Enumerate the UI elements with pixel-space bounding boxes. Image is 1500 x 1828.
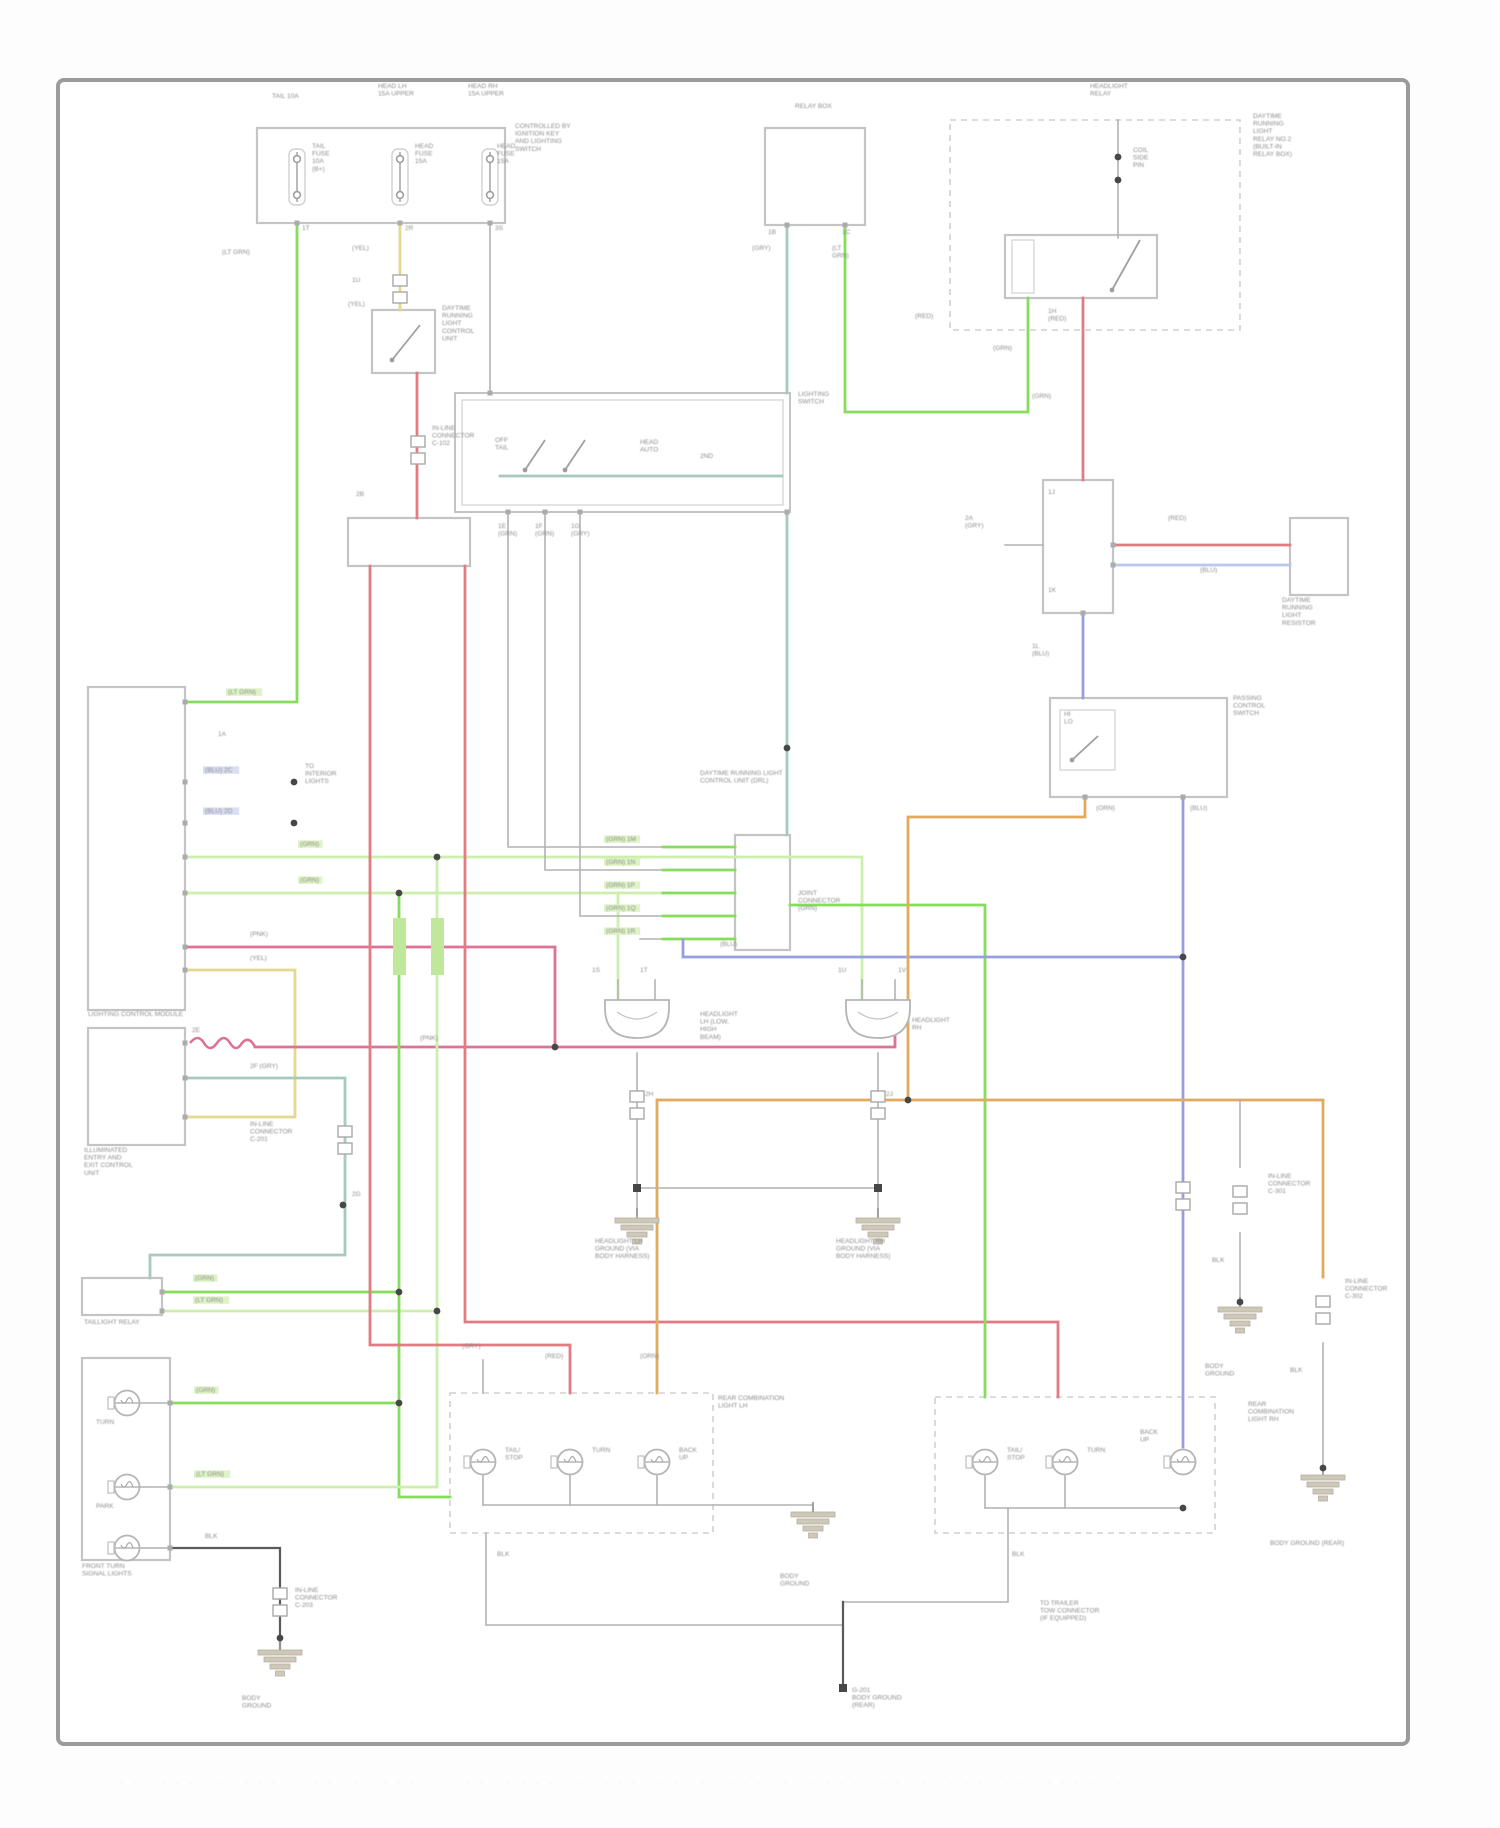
pin-tick-25 (1081, 611, 1086, 616)
switch-pivot-2 (390, 358, 395, 363)
label-100: UP (1140, 1437, 1150, 1444)
label-90: (RED) (545, 1353, 563, 1360)
pin-tick-11 (160, 1309, 165, 1314)
pin-tick-1 (183, 780, 188, 785)
pin-tick-10 (160, 1290, 165, 1295)
label-53: EXIT CONTROL (84, 1162, 133, 1169)
junction-dot-2 (434, 854, 441, 861)
label-14: CONTROL (442, 328, 475, 335)
inline-connector-box (348, 518, 470, 566)
fuse-head-lh-pin-top (397, 156, 404, 163)
label-82: BEAM) (700, 1034, 721, 1041)
pin-tick-17 (488, 221, 493, 226)
junction-dot-4 (552, 1044, 559, 1051)
label-101: COMBINATION (1248, 1409, 1294, 1416)
junction-dot-3 (396, 890, 403, 897)
label-21: (GRN) (498, 531, 517, 538)
label-40: (BLU) (1032, 651, 1049, 658)
fusible-link-1 (431, 918, 444, 975)
label-84: BODY HARNESS) (595, 1253, 649, 1260)
label-3: FUSE (312, 151, 330, 158)
ground-headlight-rh-bar-2 (868, 1232, 888, 1237)
ground-headlight-lh-bar-2 (627, 1232, 647, 1237)
label-83: RH (912, 1025, 922, 1032)
ground-headlight-rh-bar-1 (862, 1225, 894, 1230)
inline-connector-red-upper (411, 436, 425, 447)
label-21: 1E (498, 523, 507, 530)
label-19: HEAD (640, 439, 659, 446)
label-102: CONNECTOR (1268, 1181, 1311, 1188)
label-53: ILLUMINATED (84, 1147, 127, 1154)
label-97: BODY (780, 1573, 799, 1580)
label-29: HEADLIGHT (1090, 83, 1128, 90)
junction-dot-0 (291, 779, 298, 786)
front-marker-lh-socket (108, 1542, 114, 1554)
label-22: (GRN) (535, 531, 554, 538)
lighting-control-module (88, 687, 185, 1010)
label-101: LIGHT RH (1248, 1416, 1279, 1423)
switch-pivot-4 (1070, 758, 1075, 763)
label-42: HI (1064, 711, 1071, 718)
label-26: 1C (842, 229, 851, 236)
ground-headlight-lh-bar-0 (615, 1218, 659, 1223)
junction-dot-16 (1115, 154, 1122, 161)
label-67: TAILLIGHT RELAY (84, 1319, 140, 1326)
drl-resistor (1290, 518, 1348, 595)
ground-rear-rh-bar-2 (1313, 1489, 1333, 1494)
label-41: SWITCH (1233, 710, 1259, 717)
label-9: 3S (495, 225, 504, 232)
label-23: 1G (571, 523, 580, 530)
label-17: SWITCH (798, 399, 824, 406)
pin-tick-2 (183, 821, 188, 826)
label-49: (GRN) 1P (606, 882, 636, 889)
pin-tick-8 (183, 1076, 188, 1081)
label-84: GROUND (VIA (595, 1246, 640, 1253)
label-1: HEAD LH (378, 83, 407, 90)
label-64: 2F (GRY) (250, 1063, 278, 1070)
label-41: CONTROL (1233, 703, 1266, 710)
pin-tick-26 (1083, 795, 1088, 800)
label-54: (BLU) 2C (205, 767, 233, 774)
label-19: AUTO (640, 447, 658, 454)
label-41: PASSING (1233, 695, 1262, 702)
label-38: (BLU) (1200, 567, 1217, 574)
label-22: 1F (535, 523, 543, 530)
label-106: BLK (1290, 1367, 1303, 1374)
label-46: (GRN) (798, 905, 817, 912)
label-43: (ORN) (1096, 805, 1115, 812)
label-3: 10A (312, 158, 324, 165)
rear-rh-backup-socket (1164, 1456, 1170, 1468)
label-111: (REAR) (852, 1702, 875, 1709)
wiring-diagram-svg: TAIL 10AHEAD LH15A UPPERHEAD RH15A UPPER… (0, 0, 1500, 1828)
label-44: (BLU) (1190, 805, 1207, 812)
inline-connector-yellow-lower (393, 292, 407, 303)
junction-square-0 (633, 1184, 641, 1192)
front-turn-signal-box (82, 1358, 170, 1560)
label-60: (GRN) (300, 877, 319, 884)
inline-connector-red-lower (411, 453, 425, 464)
label-50: (GRN) 1Q (606, 905, 636, 912)
label-72: PARK (96, 1503, 114, 1510)
label-33: (GRN) (993, 345, 1012, 352)
label-12: 1U (352, 277, 361, 284)
junction-square-1 (874, 1184, 882, 1192)
connector-headlight-rh-upper (871, 1091, 885, 1102)
junction-box (765, 128, 865, 225)
label-5: FUSE (497, 151, 515, 158)
pin-tick-21 (543, 510, 548, 515)
label-77: BODY (242, 1695, 261, 1702)
label-8: 2R (405, 225, 414, 232)
label-68: (GRN) (195, 1275, 214, 1282)
label-110: TO TRAILER (1040, 1600, 1079, 1607)
front-park-lh-socket (108, 1481, 114, 1493)
label-14: RUNNING (442, 313, 473, 320)
label-6: IGNITION KEY (515, 131, 560, 138)
label-45: DAYTIME RUNNING LIGHT (700, 770, 783, 777)
pin-tick-13 (168, 1485, 173, 1490)
label-74: (LT GRN) (196, 1471, 224, 1478)
label-87: 2J (886, 1091, 893, 1098)
label-56: TO (305, 763, 314, 770)
label-14: UNIT (442, 335, 457, 342)
label-112: (GRN) (1032, 393, 1051, 400)
label-108: BLK (497, 1551, 510, 1558)
label-46: JOINT (798, 890, 817, 897)
label-88: (PNK) (420, 1035, 438, 1042)
label-5: 15A (497, 158, 509, 165)
label-78: 1S (592, 967, 601, 974)
rear-lh-backup-socket (638, 1456, 644, 1468)
rear-rh-tail-stop-socket (966, 1456, 972, 1468)
label-17: LIGHTING (798, 391, 829, 398)
fuse-head-lh-pin-bottom (397, 192, 404, 199)
ground-rear-lh-bar-0 (791, 1512, 835, 1517)
label-15: C-102 (432, 440, 450, 447)
label-102: C-301 (1268, 1188, 1286, 1195)
label-10: (LT GRN) (222, 249, 250, 256)
label-83: HEADLIGHT (912, 1017, 950, 1024)
label-92: (GRY) (462, 1343, 481, 1350)
rear-lh-turn-socket (551, 1456, 557, 1468)
label-111: G-201 (852, 1687, 871, 1694)
label-85: GROUND (VIA (836, 1246, 881, 1253)
label-15: CONNECTOR (432, 433, 475, 440)
ground-rear-rh-bar-3 (1319, 1496, 1328, 1501)
label-6: AND LIGHTING (515, 138, 562, 145)
label-3: TAIL (312, 143, 326, 150)
label-82: LH (LOW, (700, 1019, 729, 1026)
switch-pivot-0 (523, 468, 528, 473)
label-70: SIGNAL LIGHTS (82, 1571, 132, 1578)
pin-tick-24 (488, 391, 493, 396)
label-95: UP (679, 1455, 689, 1462)
ground-connector-bar-3 (1236, 1328, 1245, 1333)
label-100: BACK (1140, 1429, 1159, 1436)
pin-tick-0 (183, 700, 188, 705)
label-28: GRN) (832, 253, 849, 260)
junction-dot-8 (1237, 1299, 1244, 1306)
label-61: (PNK) (250, 931, 268, 938)
inline-connector-black-lower (273, 1605, 287, 1616)
inline-connector-orn-1-lower (1233, 1203, 1247, 1214)
inline-connector-blue-lower (1176, 1199, 1190, 1210)
label-31: SIDE (1133, 155, 1149, 162)
label-65: C-201 (250, 1136, 268, 1143)
label-47: (GRN) 1M (606, 836, 636, 843)
label-59: (GRN) (300, 841, 319, 848)
label-80: 1U (838, 967, 847, 974)
label-3: (B+) (312, 166, 325, 173)
label-20: 2ND (700, 453, 713, 460)
inline-connector-black-upper (273, 1588, 287, 1599)
inline-connector-gray-upper (338, 1126, 352, 1137)
label-70: FRONT TURN (82, 1563, 125, 1570)
label-45: CONTROL UNIT (DRL) (700, 778, 769, 785)
rear-lh-tail-stop-socket (464, 1456, 470, 1468)
label-111: BODY GROUND (852, 1695, 902, 1702)
inline-connector-blue-upper (1176, 1182, 1190, 1193)
joint-connector (735, 835, 790, 950)
label-14: DAYTIME (442, 305, 471, 312)
label-102: IN-LINE (1268, 1173, 1292, 1180)
label-39: DAYTIME (1282, 597, 1311, 604)
label-76: C-203 (295, 1602, 313, 1609)
label-39: RUNNING (1282, 605, 1313, 612)
label-96: REAR COMBINATION (718, 1395, 784, 1402)
label-98: TAIL/ (1007, 1447, 1022, 1454)
label-66: 2G (352, 1191, 361, 1198)
ground-headlight-rh-bar-0 (856, 1218, 900, 1223)
label-27: (GRY) (752, 245, 771, 252)
label-76: IN-LINE (295, 1587, 319, 1594)
label-89: (BLU) (720, 941, 737, 948)
label-23: (GRY) (571, 531, 590, 538)
label-105: CONNECTOR (1345, 1286, 1388, 1293)
ground-connector-bar-1 (1224, 1314, 1256, 1319)
label-25: 1B (768, 229, 777, 236)
fuse-tail-pin-top (294, 156, 301, 163)
label-40: 1L (1032, 643, 1040, 650)
pin-tick-19 (843, 223, 848, 228)
label-82: HIGH (700, 1026, 717, 1033)
label-42: LO (1064, 719, 1073, 726)
junction-dot-14 (396, 1400, 403, 1407)
junction-dot-6 (905, 1097, 912, 1104)
pin-tick-28 (1111, 543, 1116, 548)
label-4: FUSE (415, 151, 433, 158)
label-94: TURN (592, 1447, 611, 1454)
label-77: GROUND (242, 1703, 272, 1710)
label-28: (LT (832, 245, 841, 252)
label-109: BLK (1012, 1551, 1025, 1558)
label-85: BODY HARNESS) (836, 1253, 890, 1260)
label-65: CONNECTOR (250, 1129, 293, 1136)
label-39: LIGHT (1282, 612, 1301, 619)
label-56: INTERIOR (305, 771, 337, 778)
label-105: IN-LINE (1345, 1278, 1369, 1285)
label-32: 1H (1048, 308, 1057, 315)
scanned-wiring-diagram-page: TAIL 10AHEAD LH15A UPPERHEAD RH15A UPPER… (0, 0, 1500, 1828)
label-30: LIGHT (1253, 128, 1272, 135)
lighting-switch (455, 393, 790, 512)
pin-tick-27 (1181, 795, 1186, 800)
label-2: 15A UPPER (468, 91, 504, 98)
label-105: C-302 (1345, 1293, 1363, 1300)
taillight-relay (82, 1278, 162, 1315)
label-98: STOP (1007, 1455, 1025, 1462)
ground-rear-lh-bar-2 (803, 1526, 823, 1531)
switch-pivot-1 (563, 468, 568, 473)
label-30: RELAY NO.2 (1253, 136, 1292, 143)
inline-connector-orn-2-upper (1316, 1296, 1330, 1307)
label-34: (GRY) (965, 523, 984, 530)
label-86: 2H (645, 1091, 654, 1098)
label-96: LIGHT LH (718, 1403, 748, 1410)
label-5: HEAD (497, 143, 516, 150)
label-37: (RED) (1168, 515, 1186, 522)
pin-tick-12 (168, 1401, 173, 1406)
label-91: (ORN) (640, 1353, 659, 1360)
label-53: ENTRY AND (84, 1155, 122, 1162)
label-93: STOP (505, 1455, 523, 1462)
label-62: (YEL) (250, 955, 267, 962)
label-93: TAIL/ (505, 1447, 520, 1454)
ground-front-lh-bar-3 (276, 1671, 285, 1676)
junction-dot-17 (1115, 177, 1122, 184)
inline-connector-orn-2-lower (1316, 1313, 1330, 1324)
connector-headlight-lh-lower (630, 1108, 644, 1119)
label-24: RELAY BOX (795, 103, 832, 110)
ground-rear-lh-bar-1 (797, 1519, 829, 1524)
label-71: TURN (96, 1419, 115, 1426)
label-30: DAYTIME (1253, 113, 1282, 120)
label-76: CONNECTOR (295, 1595, 338, 1602)
fuse-head-rh-pin-bottom (487, 192, 494, 199)
label-30: RELAY BOX) (1253, 151, 1292, 158)
label-11: (YEL) (352, 245, 369, 252)
label-13: (YEL) (348, 301, 365, 308)
label-0: TAIL 10A (272, 93, 299, 100)
junction-dot-13 (434, 1308, 441, 1315)
label-4: 15A (415, 158, 427, 165)
label-79: 1T (640, 967, 648, 974)
pin-tick-14 (168, 1546, 173, 1551)
label-46: CONNECTOR (798, 898, 841, 905)
label-30: (BUILT-IN (1253, 143, 1282, 150)
label-103: BLK (1212, 1257, 1225, 1264)
label-97: GROUND (780, 1581, 810, 1588)
inline-connector-yellow-upper (393, 275, 407, 286)
label-73: (GRN) (196, 1387, 215, 1394)
label-31: COIL (1133, 147, 1149, 154)
label-7: 1T (302, 225, 310, 232)
rear-rh-turn-socket (1046, 1456, 1052, 1468)
label-29: RELAY (1090, 91, 1112, 98)
ground-rear-rh-bar-1 (1307, 1482, 1339, 1487)
junction-dot-1 (291, 820, 298, 827)
pin-tick-16 (398, 221, 403, 226)
label-30: RUNNING (1253, 121, 1284, 128)
label-65: IN-LINE (250, 1121, 274, 1128)
illumination-unit (88, 1028, 185, 1145)
label-1: 15A UPPER (378, 91, 414, 98)
junction-dot-12 (396, 1289, 403, 1296)
label-58: (LT GRN) (228, 689, 256, 696)
label-51: (GRN) 1R (606, 928, 636, 935)
label-18: OFF (495, 437, 508, 444)
label-82: HEADLIGHT (700, 1011, 738, 1018)
junction-dot-10 (277, 1635, 284, 1642)
junction-dot-5 (784, 745, 791, 752)
switch-pivot-3 (1110, 288, 1115, 293)
label-110: (IF EQUIPPED) (1040, 1615, 1086, 1622)
label-84: HEADLIGHT LH (595, 1238, 643, 1245)
label-15: IN-LINE (432, 425, 456, 432)
pin-tick-9 (183, 1115, 188, 1120)
label-2: HEAD RH (468, 83, 498, 90)
ground-front-lh-bar-0 (258, 1650, 302, 1655)
connector-headlight-rh-lower (871, 1108, 885, 1119)
label-48: (GRN) 1N (606, 859, 636, 866)
pin-tick-20 (506, 510, 511, 515)
label-99: TURN (1087, 1447, 1106, 1454)
label-69: (LT GRN) (195, 1297, 223, 1304)
inline-connector-gray-lower (338, 1143, 352, 1154)
ground-connector-bar-2 (1230, 1321, 1250, 1326)
label-34: 2A (965, 515, 974, 522)
label-6: SWITCH (515, 146, 541, 153)
label-18: TAIL (495, 445, 509, 452)
label-39: RESISTOR (1282, 620, 1316, 627)
ground-front-lh-bar-1 (264, 1657, 296, 1662)
pin-tick-18 (785, 223, 790, 228)
label-6: CONTROLLED BY (515, 123, 571, 130)
label-110: TOW CONNECTOR (1040, 1608, 1100, 1615)
junction-square-2 (839, 1684, 847, 1692)
pin-tick-5 (183, 945, 188, 950)
ground-front-lh-bar-2 (270, 1664, 290, 1669)
junction-dot-15 (1180, 1505, 1187, 1512)
ground-headlight-lh-bar-1 (621, 1225, 653, 1230)
label-95: BACK (679, 1447, 698, 1454)
fuse-head-rh-pin-top (487, 156, 494, 163)
label-32: (RED) (1048, 316, 1066, 323)
drl-control-switch (372, 310, 435, 373)
junction-dot-9 (1320, 1465, 1327, 1472)
connector-headlight-lh-upper (630, 1091, 644, 1102)
pin-tick-4 (183, 891, 188, 896)
label-14: LIGHT (442, 320, 461, 327)
label-81: 1V (898, 967, 907, 974)
label-63: 2E (192, 1027, 201, 1034)
label-56: LIGHTS (305, 778, 329, 785)
label-52: LIGHTING CONTROL MODULE (88, 1011, 184, 1018)
pin-tick-23 (785, 510, 790, 515)
pin-tick-7 (183, 1041, 188, 1046)
fuse-tail-pin-bottom (294, 192, 301, 199)
label-113: (RED) (915, 313, 933, 320)
label-104: BODY (1205, 1363, 1224, 1370)
front-turn-lh-socket (108, 1397, 114, 1409)
pin-tick-22 (578, 510, 583, 515)
label-104: GROUND (1205, 1371, 1235, 1378)
ground-connector-bar-0 (1218, 1307, 1262, 1312)
inline-connector-orn-1-upper (1233, 1186, 1247, 1197)
junction-dot-7 (1180, 954, 1187, 961)
